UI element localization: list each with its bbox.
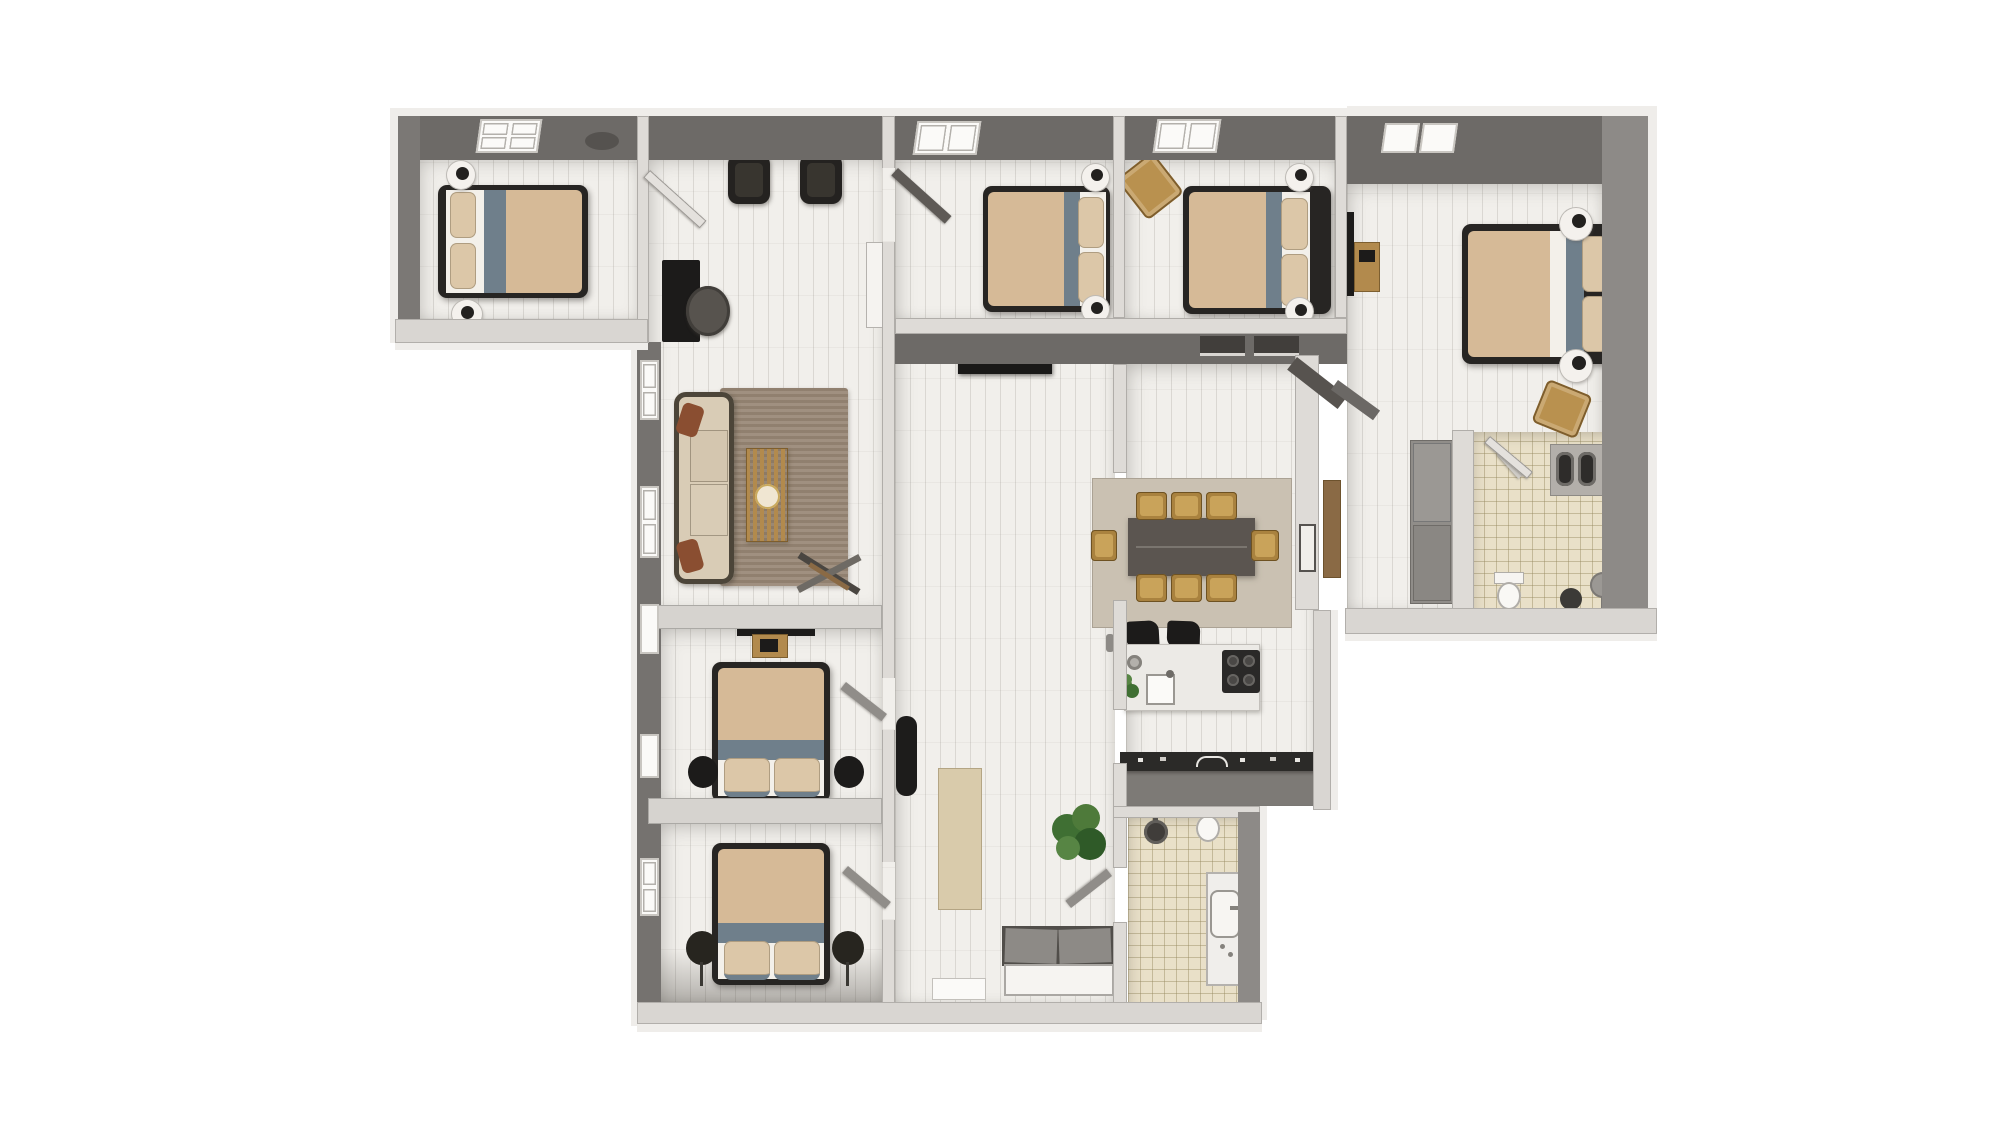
double-bed — [438, 185, 588, 298]
bed-blanket — [1468, 231, 1554, 357]
bed-pillow — [774, 758, 820, 797]
planter — [1560, 588, 1582, 610]
double-bed — [1462, 224, 1612, 364]
table-lamp-icon — [1295, 169, 1307, 181]
bed-pillow — [774, 941, 820, 980]
skylight-window — [1381, 123, 1420, 153]
table-lamp-icon — [1091, 169, 1103, 181]
hallway-floor — [895, 331, 1115, 1003]
sofa — [674, 392, 734, 584]
shoe-cabinet — [1004, 964, 1114, 996]
interior-wall — [637, 116, 649, 343]
skylight-window — [1153, 119, 1222, 153]
chair-seat — [1175, 496, 1198, 516]
south-wall — [1345, 608, 1657, 634]
table-lamp-icon — [1295, 304, 1307, 316]
wall-vent — [1254, 336, 1299, 356]
tall-cabinet — [1323, 480, 1341, 578]
armchair-seat — [807, 163, 835, 197]
leaf — [1125, 684, 1139, 698]
interior-wall — [648, 605, 882, 629]
round-tray — [755, 484, 780, 509]
leaf — [1056, 836, 1080, 860]
wall-vent — [1200, 336, 1245, 356]
chair-seat — [1140, 496, 1163, 516]
bed-pillow — [1078, 252, 1104, 303]
closet-wall — [1452, 430, 1474, 610]
sofa-pillow — [675, 538, 705, 575]
double-bed — [712, 843, 830, 985]
dining-table — [1128, 518, 1255, 576]
vanity-basin — [1210, 890, 1240, 938]
entry-bench — [1002, 926, 1114, 966]
sofa-cushion — [690, 484, 728, 536]
closed-door — [1299, 524, 1316, 572]
table-lamp-icon — [1091, 302, 1103, 314]
west-wall — [398, 116, 420, 343]
bench-cushion — [1058, 928, 1111, 964]
west-wall — [637, 342, 661, 1024]
toilet-bowl — [1497, 582, 1521, 610]
bed-blanket — [718, 849, 824, 925]
interior-wall — [1335, 116, 1347, 318]
exterior-trim — [395, 343, 648, 350]
interior-wall — [1113, 116, 1125, 318]
hallway-east-wall — [1113, 600, 1127, 710]
side-window — [640, 604, 659, 654]
counter-item — [1270, 757, 1276, 761]
east-wall — [1313, 610, 1331, 810]
door-opening — [882, 678, 895, 730]
toilet — [1494, 572, 1524, 612]
folding-rack-decor — [792, 544, 866, 604]
ceiling-vent — [585, 132, 619, 150]
desk-chair — [686, 286, 730, 336]
counter-faucet — [1196, 756, 1228, 767]
east-wall — [1602, 116, 1648, 636]
toilet-bowl — [1196, 815, 1220, 842]
open-door-dark — [896, 716, 917, 796]
counter-item — [1295, 758, 1300, 762]
media-console — [1354, 242, 1380, 292]
kitchen-counter-top — [1120, 752, 1318, 771]
faucet-dot — [1166, 670, 1174, 678]
counter-item — [1138, 758, 1143, 762]
chair-seat — [1095, 534, 1113, 557]
armchair-seat — [735, 163, 763, 197]
bed-pillow — [724, 941, 770, 980]
dining-chair — [1171, 574, 1202, 602]
wardrobe — [1410, 440, 1454, 604]
table-lamp-icon — [1572, 214, 1586, 228]
sink-basin — [1578, 452, 1596, 486]
table-lamp-icon — [456, 167, 469, 180]
door-opening — [882, 168, 895, 242]
kitchen-faucet — [1127, 655, 1142, 670]
side-window — [640, 858, 659, 916]
table-seam — [1136, 546, 1247, 548]
south-wall — [637, 1002, 1262, 1024]
chair-seat — [1255, 534, 1275, 557]
interior-wall — [895, 318, 1347, 334]
bed-pillow — [450, 192, 476, 238]
exterior-trim — [1260, 806, 1267, 1020]
hallway-east-wall — [1113, 364, 1127, 473]
hallway-plant — [1046, 800, 1110, 866]
counter-item — [1240, 758, 1245, 762]
skylight-window — [1419, 123, 1458, 153]
console-item — [1359, 250, 1375, 262]
chair-seat — [1175, 578, 1198, 598]
north-wall — [648, 116, 895, 160]
dining-chair — [1091, 530, 1117, 561]
bathroom-vanity — [1206, 872, 1240, 986]
double-bed — [983, 186, 1110, 312]
exterior-trim — [1345, 634, 1657, 641]
bed-blanket — [988, 192, 1068, 306]
sink-basin — [1556, 452, 1574, 486]
interior-wall — [648, 798, 882, 824]
media-console — [752, 634, 788, 658]
floor-plan — [0, 0, 2000, 1125]
shower-head — [1144, 820, 1168, 844]
entry-mat — [932, 978, 986, 1000]
bed-blanket — [1189, 192, 1269, 308]
bench-cushion — [1004, 928, 1057, 964]
exterior-trim — [1331, 610, 1338, 810]
floor-lamp-stem — [846, 962, 849, 986]
bed-blanket — [718, 668, 824, 742]
skylight-window — [476, 119, 543, 153]
bed-runner — [484, 190, 508, 293]
bed-pillow — [1281, 198, 1308, 250]
door-opening — [882, 862, 895, 920]
cooktop — [1222, 650, 1260, 693]
chair-seat — [1210, 578, 1233, 598]
dining-chair — [1136, 574, 1167, 602]
double-bed — [712, 662, 830, 802]
dining-chair — [1171, 492, 1202, 520]
burner — [1227, 655, 1239, 667]
skylight-window — [913, 121, 982, 155]
exterior-trim — [1648, 106, 1657, 640]
south-wall — [395, 319, 648, 343]
prep-sink — [1146, 674, 1175, 705]
burner — [1227, 674, 1239, 686]
table-lamp-icon — [1572, 356, 1586, 370]
dining-chair — [1136, 492, 1167, 520]
burner — [1243, 674, 1255, 686]
chair-seat — [1210, 496, 1233, 516]
hallway-east-wall — [1113, 922, 1127, 1003]
floor-lamp-stem — [700, 962, 703, 986]
side-window — [640, 734, 659, 778]
wardrobe-door — [1413, 443, 1451, 522]
slatted-coffee-table — [746, 448, 788, 542]
bedside-stool — [834, 756, 864, 788]
armchair-icon — [728, 154, 770, 204]
dining-chair — [1206, 492, 1237, 520]
dining-chair — [1206, 574, 1237, 602]
floor-plan-canvas — [0, 0, 2000, 1125]
dining-chair — [1251, 530, 1279, 561]
exterior-trim — [637, 1024, 1262, 1032]
burner — [1243, 655, 1255, 667]
bedside-stool — [688, 756, 718, 788]
armchair-icon — [800, 154, 842, 204]
handle-dot — [1228, 952, 1233, 957]
kitchen-counter-front — [1120, 771, 1318, 806]
table-lamp-icon — [461, 306, 474, 319]
chair-seat — [1140, 578, 1163, 598]
double-bed — [1183, 186, 1331, 314]
side-window — [640, 360, 659, 420]
exterior-trim — [390, 108, 398, 343]
floor-lamp-icon — [686, 931, 718, 965]
floor-lamp-icon — [832, 931, 864, 965]
console-item — [760, 639, 778, 652]
handle-dot — [1220, 944, 1225, 949]
bed-pillow — [450, 243, 476, 289]
side-window — [640, 486, 659, 558]
bed-pillow — [1078, 197, 1104, 248]
east-wall — [1238, 812, 1260, 1020]
wardrobe-door — [1413, 525, 1451, 601]
hallway-runner-rug — [938, 768, 982, 910]
bed-pillow — [724, 758, 770, 797]
counter-item — [1160, 757, 1166, 761]
bed-blanket — [506, 190, 582, 293]
sofa-cushion — [690, 430, 728, 482]
